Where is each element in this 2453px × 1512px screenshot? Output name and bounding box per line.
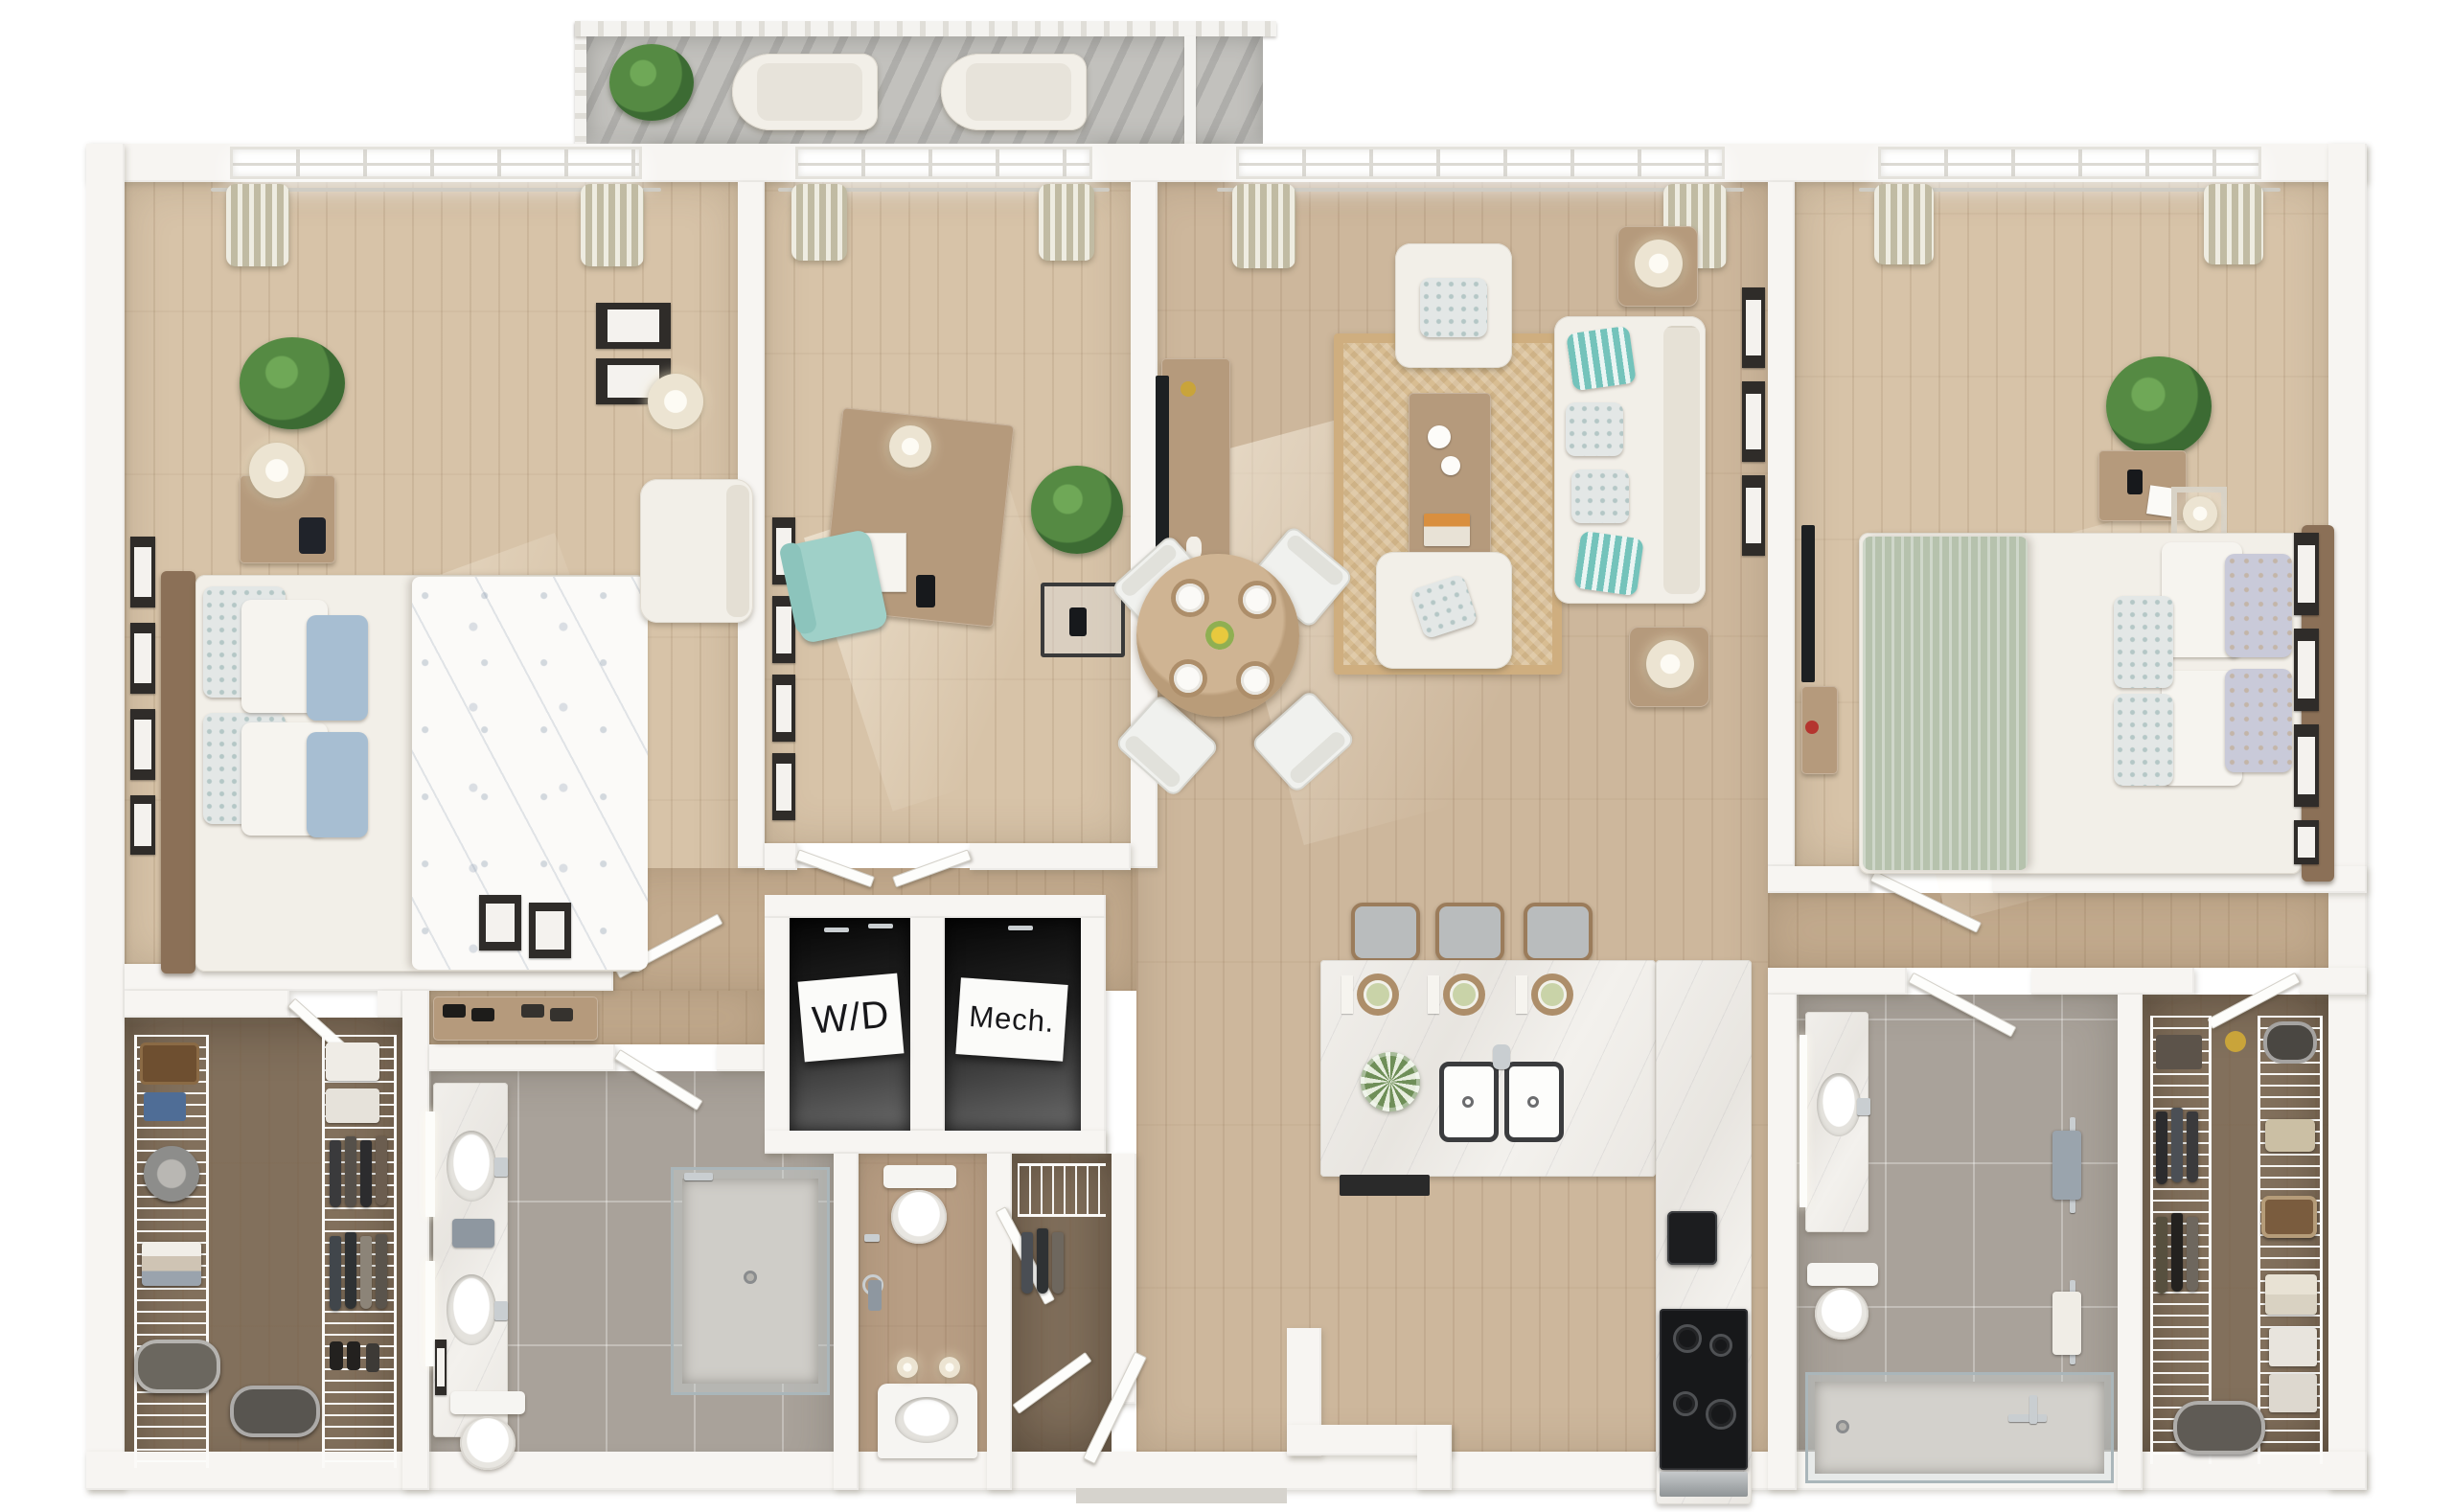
washer-dryer-label-card: W/D [798,974,905,1063]
napkin-cutlery [1428,975,1439,1014]
dishwasher [1340,1175,1430,1196]
tv [1801,525,1815,682]
closet1-north-wall [378,991,402,1018]
wire-shelf [1018,1163,1106,1217]
storage-basket [140,1042,199,1085]
wall-art-frame [1742,475,1765,556]
hanging-clothes [330,1236,341,1311]
hand-towel [452,1219,494,1248]
folded-sweaters [142,1242,201,1286]
duffel-bag [134,1340,220,1393]
shower-fixtures [2029,1395,2037,1424]
leaning-art-frame [529,903,571,958]
shoes [443,1004,466,1018]
bed-1-headboard [161,571,195,974]
hanging-clothes [2171,1108,2183,1182]
door-hinge [824,928,849,932]
vanity-mirror [425,1111,435,1217]
ball [2225,1031,2246,1052]
napkin-cutlery [1341,975,1353,1014]
bar-stool [1524,903,1593,962]
lounge-chair-cushion [757,63,862,121]
coffee-table [1409,393,1491,577]
hanging-clothes [1021,1232,1033,1294]
toilet-bowl [1815,1288,1868,1340]
flower-vase [1205,621,1234,650]
phone [2127,470,2143,494]
wall-art-frame [2294,724,2319,807]
pillow [2225,669,2292,772]
laundry-block-wall [1081,918,1106,1154]
curtain-panel [1232,184,1295,268]
vanity-sink [1817,1073,1861,1136]
wall-art-frame [435,1340,447,1395]
wall-living-bedroom2 [1768,182,1795,866]
masterbath-north-wall [717,1044,765,1071]
hanging-clothes [2187,1217,2198,1292]
shoes [366,1343,379,1372]
toilet-paper-holder [864,1234,880,1242]
storage-box [2269,1374,2317,1412]
wall-art-frame [130,623,155,694]
masterbath-north-wall [429,1044,615,1071]
door-hinge [868,924,893,928]
wall-masterbath-powder [834,1154,859,1490]
potted-plant [1031,466,1123,554]
leaning-art-frame [479,895,521,951]
place-setting-plate [1450,980,1479,1009]
decor-succulent [1361,1052,1420,1111]
toilet-bowl [891,1190,947,1244]
bedroom-2-window [1878,147,2261,179]
wall-closet1-masterbath [402,991,429,1490]
toilet [1807,1263,1878,1286]
curtain-panel [581,184,644,266]
mechanical-label-card: Mech. [955,977,1067,1062]
dinner-plate [1243,585,1272,614]
bedroom-corridor-floor [1768,893,2328,968]
hanging-clothes [360,1140,372,1207]
clutch-bag [2265,1119,2315,1152]
storage-box [144,1092,186,1121]
bath-towel [2052,1131,2081,1200]
toilet-bowl [460,1416,516,1470]
wall-art-frame [2294,629,2319,711]
hanging-clothes [2156,1111,2167,1184]
hanging-clothes [2187,1111,2198,1182]
sink-drain [1527,1096,1539,1108]
hanging-clothes [1037,1228,1048,1294]
pillow [307,732,368,837]
den-window [795,147,1092,179]
decor-lamp [1181,381,1196,397]
floor-plan-render: W/D Mech. [0,0,2453,1512]
duffel-bag [2173,1401,2265,1455]
table-lamp [1646,640,1694,688]
hanging-clothes [376,1136,387,1205]
pillow [1566,326,1637,392]
hanging-clothes [330,1140,341,1207]
storage-bin [326,1042,379,1081]
place-setting-plate [1538,980,1567,1009]
coffee-maker [1667,1211,1717,1265]
hanging-clothes [2156,1217,2167,1294]
pillow [2225,554,2292,657]
entry-threshold [1076,1488,1287,1503]
cooktop-burner [1673,1391,1698,1416]
storage-box [2269,1328,2317,1366]
hat [144,1146,199,1202]
wall-art-frame [596,303,671,349]
storage-box [2156,1035,2202,1069]
hand-towel [868,1280,882,1311]
wall-art-frame [772,753,795,820]
pillow [1573,531,1644,597]
armchair-back [726,485,749,617]
shoes [521,1004,544,1018]
pillow [1571,470,1629,523]
curtain-panel [226,184,289,266]
wall-art-frame [2294,820,2319,864]
sofa-back-cushions [1663,326,1700,594]
phone [916,575,935,607]
lounge-chair-cushion [966,63,1071,121]
folded-towels [2265,1274,2317,1315]
hanging-clothes [1052,1232,1064,1294]
wall-art-frame [130,795,155,855]
magazine [1424,514,1470,546]
vanity-sink [447,1131,496,1202]
cooktop-burner [1709,1334,1732,1357]
toilet [883,1165,956,1188]
bed-2-sage-throw [1863,537,2028,870]
cooktop-burner [1673,1324,1702,1353]
sconce-light [939,1357,960,1378]
bar-stool [1435,903,1504,962]
laundry-block-wall [765,895,1106,918]
curtain-panel [791,184,847,261]
balcony-railing-top [575,21,1276,36]
suitcase [2261,1196,2317,1238]
shoes [471,1008,494,1021]
table-lamp [2183,496,2217,531]
kitchen-faucet [1493,1044,1510,1069]
balcony-privacy-screen [1184,36,1196,144]
hanging-clothes [2171,1213,2183,1292]
door-hinge [1008,926,1033,930]
sconce-light [897,1357,918,1378]
hanging-clothes [360,1236,372,1309]
exterior-wall-left [86,144,125,1490]
shower-drain [1836,1420,1849,1433]
wall-bath2-closet2 [2118,995,2143,1490]
bath2-north-wall [2300,968,2367,995]
hanging-clothes [345,1136,356,1207]
faucet [494,1157,508,1177]
entry-nook-wall [1417,1425,1452,1490]
vanity-sink [447,1274,496,1345]
wall-art-frame [1742,287,1765,368]
napkin-cutlery [1516,975,1527,1014]
mechanical-label: Mech. [968,999,1056,1040]
sink-drain [1462,1096,1474,1108]
flower-vase [1805,721,1819,734]
tablet [299,517,326,554]
den-south-wall [970,843,1131,870]
curtain-panel [1874,184,1934,264]
oven-front [1660,1472,1748,1497]
wall-art-frame [1742,381,1765,462]
bath2-north-wall [1768,968,1907,995]
bath2-north-wall [2031,968,2194,995]
den-south-wall [765,843,797,870]
dinner-plate [1176,584,1204,612]
shower-drain [744,1271,757,1284]
place-setting-plate [1364,980,1392,1009]
storage-bin [326,1088,379,1123]
shower-fixtures [2008,1414,2047,1422]
hanging-clothes [345,1232,356,1309]
hanging-clothes [376,1234,387,1309]
cooktop-burner [1706,1399,1736,1430]
potted-plant [2106,356,2212,456]
pillow [1566,402,1623,456]
closet1-north-wall [125,991,289,1018]
decor-vase [1428,425,1451,448]
curtain-panel [1039,184,1094,261]
pillow [307,615,368,721]
pillow [2114,596,2173,688]
faucet [494,1301,508,1320]
toilet [450,1391,525,1414]
wall-powder-coatcloset [987,1154,1012,1490]
shoes [550,1008,573,1021]
table-lamp [249,443,305,498]
exterior-wall-right [2328,144,2367,1490]
shower-head [684,1173,713,1180]
shoes [330,1341,343,1370]
bedroom2-south-wall [1768,866,1870,893]
living-room-window [1236,147,1725,179]
dinner-plate [1174,664,1203,693]
wall-art-frame [130,537,155,607]
sink-basin [895,1397,958,1443]
tub-shower-pan [1815,1382,2104,1474]
phone [1069,607,1087,636]
wall-art-frame [130,709,155,780]
laundry-block-wall [910,918,945,1131]
pillow [1420,278,1487,337]
vanity-mirror [1800,1035,1807,1207]
potted-plant [240,337,345,429]
duffel-bag [230,1386,320,1437]
laundry-block-wall [765,918,790,1154]
bedroom-1-window [230,147,642,179]
vanity-mirror [425,1261,435,1366]
pillow [2114,694,2173,786]
bath-towel [2052,1292,2081,1355]
shoes [347,1341,360,1370]
balcony-plant [609,44,694,121]
dinner-plate [1241,666,1270,695]
curtain-panel [2204,184,2263,264]
faucet [1857,1098,1870,1115]
desk-lamp [889,425,931,468]
shoe-bench [433,997,598,1041]
laundry-block-wall [765,1131,1106,1154]
wall-art-frame [2294,533,2319,615]
decor-vase [1441,456,1460,475]
duffel-bag [2263,1021,2317,1064]
washer-dryer-label: W/D [811,993,891,1042]
bath2-west-wall [1768,995,1797,1490]
bar-stool [1351,903,1420,962]
table-lamp [1635,240,1683,287]
wall-art-frame [772,675,795,742]
floor-lamp [648,374,703,429]
